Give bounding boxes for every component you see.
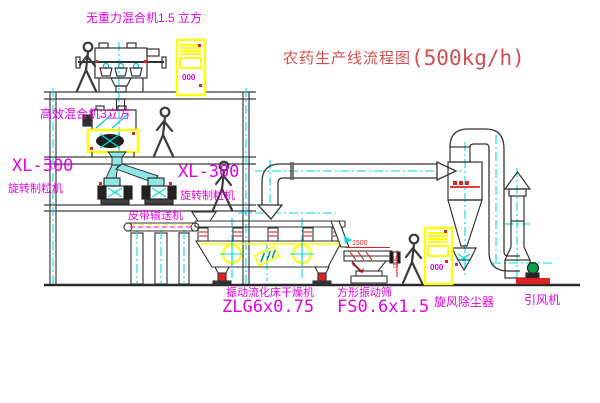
granulators-drawing [98,178,176,204]
diagram-title: 农药生产线流程图(500kg/h) [283,48,525,69]
control-cabinet-bottom-drawing [425,228,452,284]
dimension-sieve-length: 1500 [352,240,368,247]
worker-figure-4 [403,235,422,283]
cabinet-top-display: 000 [182,74,195,82]
label-high-efficiency-mixer: 高效混合机3立方 [40,108,131,120]
label-granulator-left-name: 旋转制粒机 [8,184,63,195]
dryer-springs [198,228,342,241]
title-capacity: (500kg/h) [411,46,525,70]
label-granulator-right-name: 旋转制粒机 [180,191,235,202]
label-granulator-right-model: XL-300 [178,164,239,181]
dryer-feet [213,267,331,284]
label-gravity-free-mixer: 无重力混合机1.5 立方 [86,12,202,24]
belt-conveyor-drawing [124,223,199,231]
title-text: 农药生产线流程图 [283,50,411,67]
label-sieve-model: FS0.6x1.5 [337,299,429,316]
control-cabinet-top-drawing [177,40,205,95]
label-fan: 引风机 [524,294,560,306]
cabinet-bottom-display: 000 [430,264,443,272]
flow-diagram-canvas: 无重力混合机1.5 立方 农药生产线流程图(500kg/h) 高效混合机3立方 … [0,0,600,403]
worker-figure-2 [154,108,173,156]
dimension-sieve-height: 500 [391,256,398,268]
stack-and-fan-drawing [505,172,550,284]
vibrating-sieve-drawing [331,221,400,283]
label-dryer-model: ZLG6x0.75 [222,299,314,316]
label-belt-conveyor: 皮带输送机 [128,211,183,222]
label-cyclone: 旋风除尘器 [434,296,494,308]
fluid-bed-dryer-drawing [192,212,345,284]
label-granulator-left-model: XL-300 [12,158,73,175]
